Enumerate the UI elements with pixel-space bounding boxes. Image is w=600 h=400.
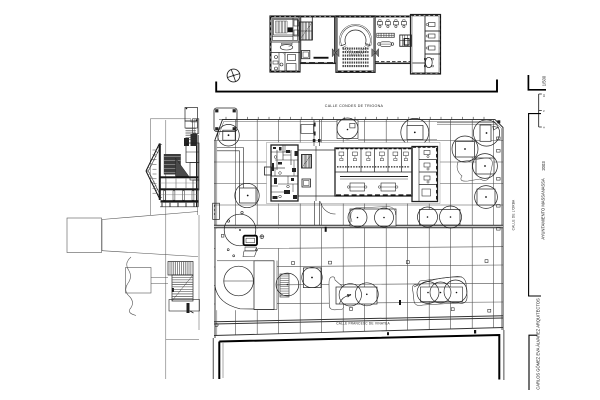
svg-text:CALLE CONDES DE TRIGONA: CALLE CONDES DE TRIGONA — [325, 104, 384, 108]
svg-text:1/500: 1/500 — [542, 75, 547, 86]
svg-text:CALLE DE L'ORBA: CALLE DE L'ORBA — [512, 199, 516, 230]
svg-text:AYUNTAMIENTO MASSANASSA: AYUNTAMIENTO MASSANASSA — [541, 178, 546, 239]
svg-text:CARLOS GÓMEZ EVA ÁLVAREZ ARQ: CARLOS GÓMEZ EVA ÁLVAREZ ARQUITECTOS — [536, 298, 541, 390]
svg-text:CALLE FRANCESC DE VINATEA: CALLE FRANCESC DE VINATEA — [336, 322, 390, 326]
svg-text:2003: 2003 — [541, 161, 546, 171]
svg-text:10: 10 — [542, 94, 546, 98]
